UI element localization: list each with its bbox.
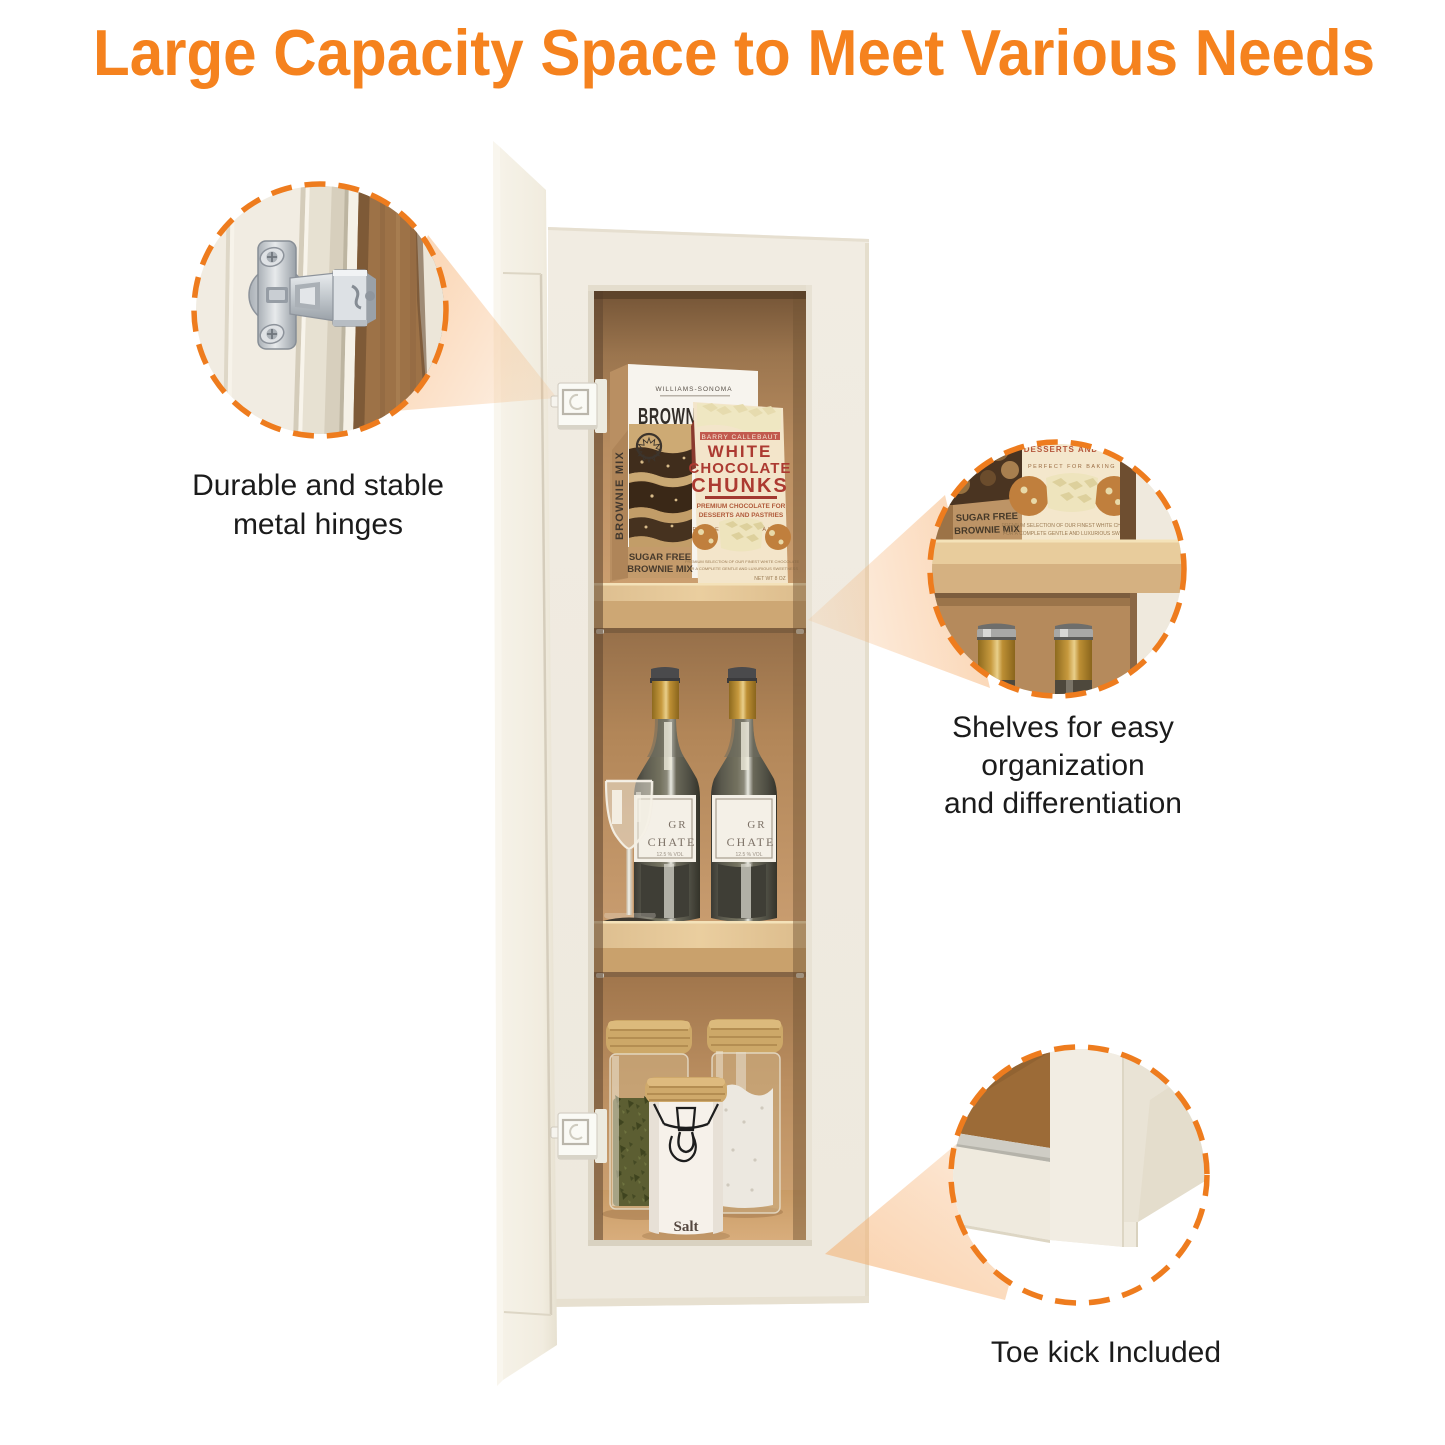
svg-text:PREMIUM CHOCOLATE FOR: PREMIUM CHOCOLATE FOR xyxy=(697,503,786,510)
svg-text:Shelves for easy: Shelves for easy xyxy=(952,711,1174,744)
svg-text:WILLIAMS-SONOMA: WILLIAMS-SONOMA xyxy=(655,386,732,393)
svg-text:PERFECT FOR BAKING: PERFECT FOR BAKING xyxy=(1028,464,1116,470)
svg-text:CHATE: CHATE xyxy=(727,835,776,849)
svg-text:Toe kick Included: Toe kick Included xyxy=(991,1336,1221,1369)
svg-text:CHATE: CHATE xyxy=(648,835,697,849)
svg-text:CHUNKS: CHUNKS xyxy=(691,475,789,497)
svg-text:metal hinges: metal hinges xyxy=(233,508,403,541)
svg-text:and differentiation: and differentiation xyxy=(944,787,1182,820)
svg-text:BARRY CALLEBAUT: BARRY CALLEBAUT xyxy=(702,434,779,441)
svg-text:GR: GR xyxy=(747,819,766,831)
svg-text:GR: GR xyxy=(668,819,687,831)
svg-text:Salt: Salt xyxy=(673,1219,698,1235)
svg-text:PREMIUM SELECTION OF OUR FINES: PREMIUM SELECTION OF OUR FINEST WHITE CH… xyxy=(685,559,800,564)
svg-text:BROWNIE MIX: BROWNIE MIX xyxy=(614,451,626,540)
svg-text:12.5 % VOL: 12.5 % VOL xyxy=(657,852,684,858)
svg-text:BROWNIE MIX: BROWNIE MIX xyxy=(627,564,693,575)
svg-text:NET WT 8 OZ: NET WT 8 OZ xyxy=(754,576,785,582)
svg-text:12.5 % VOL: 12.5 % VOL xyxy=(736,852,763,858)
svg-text:organization: organization xyxy=(981,749,1144,782)
svg-text:Large Capacity Space to Meet V: Large Capacity Space to Meet Various Nee… xyxy=(93,16,1375,89)
svg-text:WHITE: WHITE xyxy=(708,442,773,461)
svg-text:Durable and stable: Durable and stable xyxy=(192,469,444,502)
svg-text:FOR A COMPLETE GENTLE AND LUXU: FOR A COMPLETE GENTLE AND LUXURIOUS SWEE… xyxy=(686,566,798,571)
svg-text:SUGAR FREE: SUGAR FREE xyxy=(629,552,691,563)
